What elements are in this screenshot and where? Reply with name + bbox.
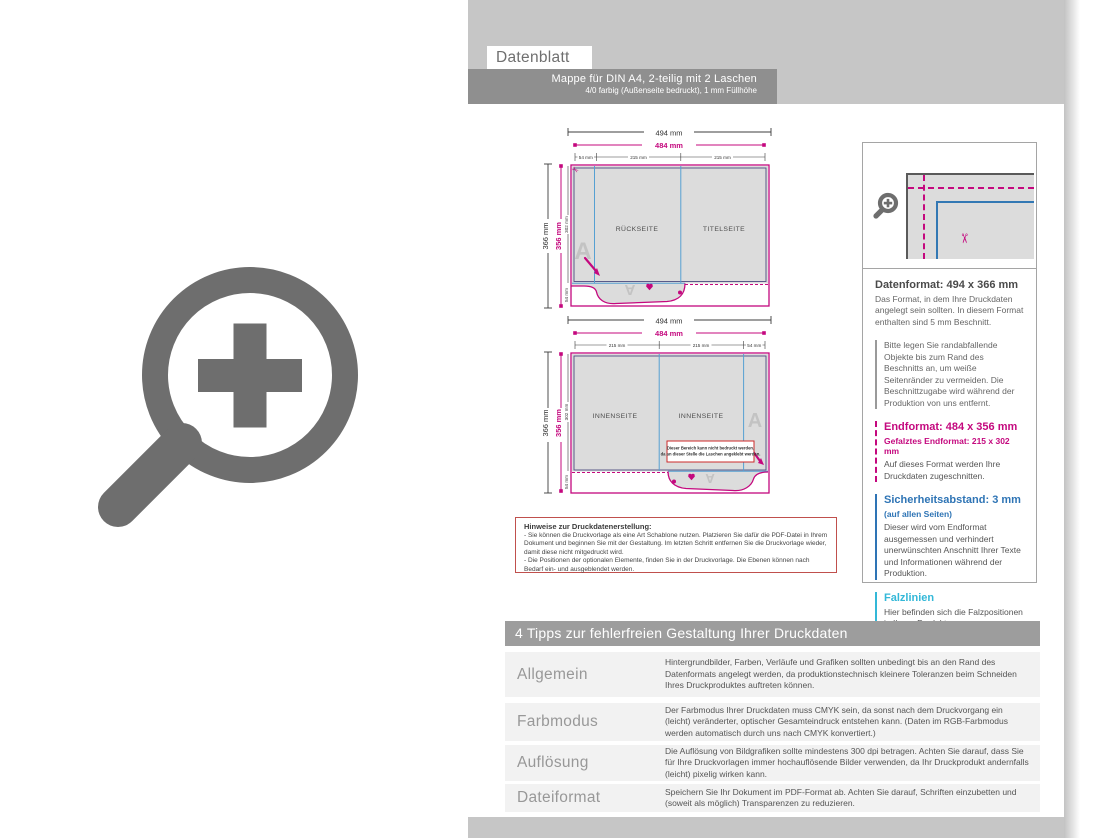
tip-label: Dateiformat: [505, 789, 665, 807]
glue-mark-icon: [672, 480, 676, 484]
tip-text: Die Auflösung von Bildgrafiken sollte mi…: [665, 746, 1040, 780]
section-endformat: Endformat: 484 x 356 mm Gefalztes Endfor…: [875, 421, 1024, 482]
page-title: Datenblatt: [487, 46, 592, 69]
dim-panel-width: 215 mm: [630, 155, 647, 160]
dim-inner-height: 356 mm: [554, 409, 563, 437]
glue-mark-icon: [678, 291, 682, 295]
datenformat-body: Das Format, in dem Ihre Druckdaten angel…: [875, 294, 1024, 328]
endformat-subtitle: Gefalztes Endformat: 215 x 302 mm: [884, 436, 1024, 456]
dim-flap-width: 54 mm: [747, 343, 761, 348]
dim-panel-width: 215 mm: [693, 343, 710, 348]
panel-label-titelseite: TITELSEITE: [703, 226, 745, 233]
dim-outer-height: 366 mm: [541, 409, 550, 436]
page-drop-shadow: [1064, 0, 1080, 838]
scissors-icon: ✂: [956, 233, 971, 244]
dim-folded-height: 302 mm: [564, 404, 569, 421]
tip-row-dateiformat: Dateiformat Speichern Sie Ihr Dokument i…: [505, 784, 1040, 812]
section-datenformat: Datenformat: 494 x 366 mm Das Format, in…: [875, 279, 1024, 328]
format-info-panel: ✂ Datenformat: 494 x 366 mm Das Format, …: [862, 142, 1037, 583]
dim-flap-height: 54 mm: [564, 475, 569, 489]
no-print-note-line2: da an dieser Stelle die Laschen angekleb…: [661, 452, 761, 457]
tip-label: Allgemein: [505, 666, 665, 684]
hints-bullet-2: - Die Positionen der optionalen Elemente…: [524, 557, 828, 574]
endformat-title: Endformat: 484 x 356 mm: [884, 421, 1024, 433]
print-data-hints-box: Hinweise zur Druckdatenerstellung: - Sie…: [515, 517, 837, 573]
dim-panel-width: 215 mm: [609, 343, 626, 348]
sicherheitsabstand-subtitle: (auf allen Seiten): [884, 509, 1024, 519]
product-subtitle: 4/0 farbig (Außenseite bedruckt), 1 mm F…: [468, 86, 757, 95]
format-info-text: Datenformat: 494 x 366 mm Das Format, in…: [863, 269, 1036, 629]
cut-line-horizontal: [908, 187, 1034, 189]
datasheet-page: Datenblatt Mappe für DIN A4, 2-teilig mi…: [468, 0, 1064, 838]
dim-inner-width: 484 mm: [655, 141, 683, 150]
page-bottom-band: [468, 817, 1064, 838]
dim-outer-height: 366 mm: [541, 222, 550, 249]
no-print-note-line1: Dieser Bereich kann nicht bedruckt werde…: [667, 446, 754, 451]
bleed-detail-figure: ✂: [863, 143, 1036, 269]
endformat-body: Auf dieses Format werden Ihre Druckdaten…: [884, 459, 1024, 482]
watermark-letter: A: [748, 410, 762, 432]
panel-label-rueckseite: RÜCKSEITE: [616, 225, 659, 233]
hints-title: Hinweise zur Druckdatenerstellung:: [524, 522, 828, 531]
zoom-plus-icon: [80, 240, 400, 580]
screenshot-canvas: Datenblatt Mappe für DIN A4, 2-teilig mi…: [0, 0, 1117, 838]
watermark-letter: A: [574, 238, 591, 265]
datenformat-title: Datenformat: 494 x 366 mm: [875, 279, 1024, 291]
panel-label-innenseite-right: INNENSEITE: [679, 413, 724, 420]
die-cut-diagrams: A A ✂ RÜCKSEITE TITELSEITE: [538, 120, 810, 505]
dim-flap-height: 54 mm: [564, 288, 569, 302]
section-sicherheitsabstand: Sicherheitsabstand: 3 mm (auf allen Seit…: [875, 494, 1024, 579]
panel-label-innenseite-left: INNENSEITE: [593, 413, 638, 420]
dim-inner-height: 356 mm: [554, 222, 563, 250]
section-bleed-note: Bitte legen Sie randabfallende Objekte b…: [875, 340, 1024, 409]
diagram-inside: A A INNENSEITE INNENSEITE Dieser Bereich…: [541, 314, 771, 493]
bleed-note-body: Bitte legen Sie randabfallende Objekte b…: [884, 340, 1024, 409]
product-header-bar: Mappe für DIN A4, 2-teilig mit 2 Laschen…: [468, 69, 777, 104]
hints-bullet-1: - Sie können die Druckvorlage als eine A…: [524, 532, 828, 557]
tip-label: Farbmodus: [505, 713, 665, 731]
sheet-corner-preview: ✂: [906, 173, 1034, 259]
tip-label: Auflösung: [505, 754, 665, 772]
dim-inner-width: 484 mm: [655, 329, 683, 338]
watermark-letter: A: [705, 471, 715, 486]
tips-header-bar: 4 Tipps zur fehlerfreien Gestaltung Ihre…: [505, 621, 1040, 646]
watermark-letter: A: [624, 281, 635, 298]
tip-text: Speichern Sie Ihr Dokument im PDF-Format…: [665, 787, 1040, 810]
falzlinien-title: Falzlinien: [884, 592, 1024, 604]
dim-folded-height: 302 mm: [564, 216, 569, 233]
diagram-outside: A A ✂ RÜCKSEITE TITELSEITE: [541, 126, 771, 308]
tip-row-aufloesung: Auflösung Die Auflösung von Bildgrafiken…: [505, 745, 1040, 781]
sicherheitsabstand-body: Dieser wird vom Endformat ausgemessen un…: [884, 522, 1024, 579]
tip-row-farbmodus: Farbmodus Der Farbmodus Ihrer Druckdaten…: [505, 703, 1040, 741]
product-title: Mappe für DIN A4, 2-teilig mit 2 Laschen: [468, 73, 757, 85]
dim-panel-width: 215 mm: [714, 155, 731, 160]
tip-text: Hintergrundbilder, Farben, Verläufe und …: [665, 657, 1040, 691]
zoom-plus-icon: [871, 191, 903, 223]
tip-text: Der Farbmodus Ihrer Druckdaten muss CMYK…: [665, 705, 1040, 739]
tip-row-allgemein: Allgemein Hintergrundbilder, Farben, Ver…: [505, 652, 1040, 697]
dim-outer-width: 494 mm: [655, 317, 682, 326]
sicherheitsabstand-title: Sicherheitsabstand: 3 mm: [884, 494, 1024, 506]
dim-outer-width: 494 mm: [655, 129, 682, 138]
safety-margin-corner: [936, 201, 1034, 259]
dim-flap-width: 54 mm: [579, 155, 593, 160]
